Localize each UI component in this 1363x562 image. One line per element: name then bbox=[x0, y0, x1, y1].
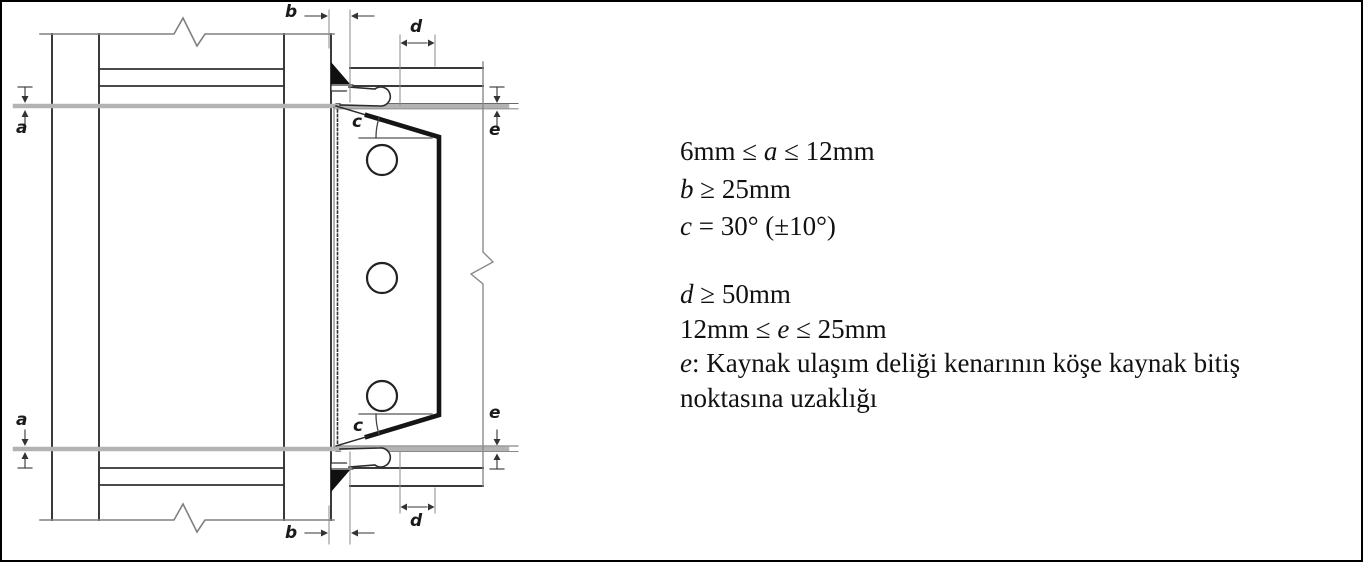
label-e-bottom: e bbox=[489, 405, 501, 422]
label-a-top: a bbox=[16, 120, 27, 137]
definition-e-line2: noktasına uzaklığı bbox=[680, 383, 877, 414]
definition-e-line1: e: Kaynak ulaşım deliği kenarının köşe k… bbox=[680, 348, 1240, 379]
constraint-d: d ≥ 50mm bbox=[680, 279, 791, 310]
dim-d-bottom bbox=[400, 452, 435, 513]
label-c-top: c bbox=[352, 114, 362, 131]
label-b-bottom: b bbox=[285, 525, 297, 542]
constraint-b: b ≥ 25mm bbox=[680, 174, 791, 205]
constraints-text-block: 6mm ≤ a ≤ 12mm b ≥ 25mm c = 30° (±10°) d… bbox=[680, 2, 1360, 560]
label-d-bottom: d bbox=[410, 513, 422, 530]
label-c-bottom: c bbox=[353, 418, 363, 435]
constraint-e: 12mm ≤ e ≤ 25mm bbox=[680, 314, 887, 345]
dim-d-top bbox=[400, 35, 435, 105]
label-a-bottom: a bbox=[16, 412, 27, 429]
label-e-top: e bbox=[489, 122, 501, 139]
connection-detail-drawing bbox=[2, 2, 562, 560]
constraint-a: 6mm ≤ a ≤ 12mm bbox=[680, 136, 875, 167]
bolt-holes bbox=[367, 145, 397, 411]
reference-bands bbox=[15, 104, 518, 452]
column-break-lines bbox=[40, 18, 334, 532]
continuity-plates bbox=[99, 69, 284, 485]
label-d-top: d bbox=[410, 19, 422, 36]
constraint-c: c = 30° (±10°) bbox=[680, 211, 836, 242]
figure-frame: a a b b c c d d e e 6mm ≤ a ≤ 12mm b ≥ 2… bbox=[0, 0, 1363, 562]
label-b-top: b bbox=[285, 4, 297, 21]
